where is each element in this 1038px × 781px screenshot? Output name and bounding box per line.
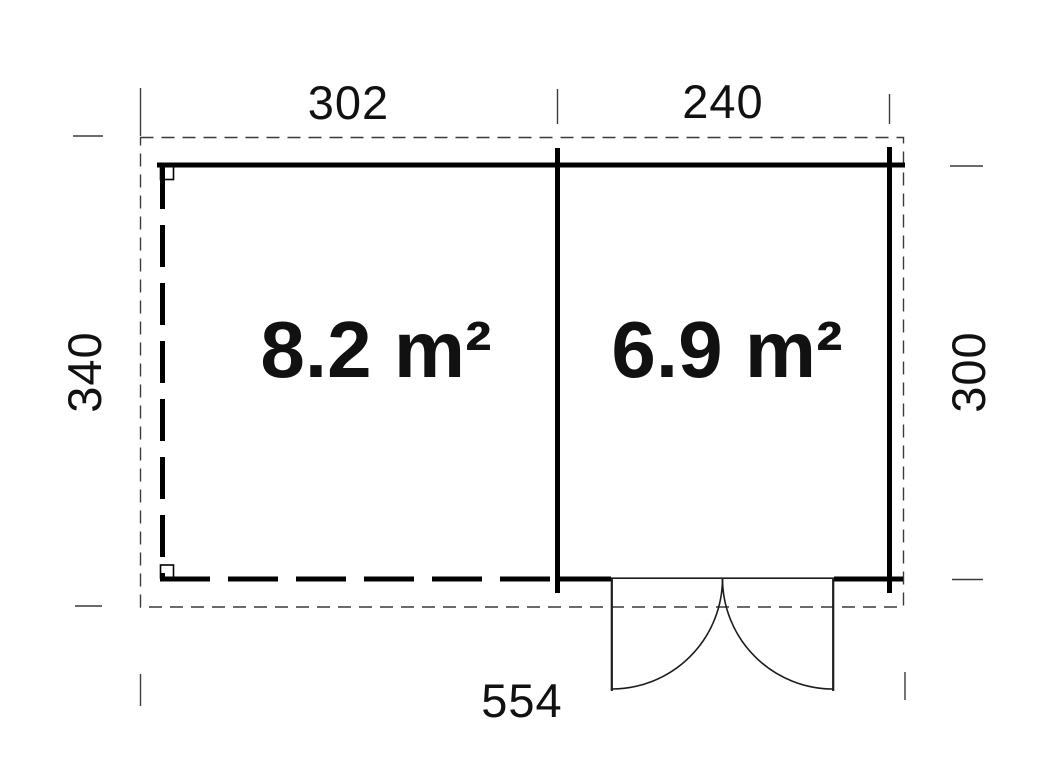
door-swing-arc-right	[723, 578, 834, 689]
dim-label-right: 300	[942, 331, 995, 412]
dim-label-top-left: 302	[308, 76, 389, 129]
dim-label-left: 340	[58, 331, 111, 412]
floor-plan-page: 302 240 340 300 554 8.2 m² 6.9 m²	[0, 0, 1038, 781]
door-swing-arc-left	[612, 578, 723, 689]
room-right-area-label: 6.9 m²	[611, 305, 842, 394]
dimension-labels: 302 240 340 300 554	[58, 75, 995, 727]
dim-label-top-right: 240	[682, 75, 763, 128]
room-area-labels: 8.2 m² 6.9 m²	[260, 305, 842, 394]
floor-plan-drawing: 302 240 340 300 554 8.2 m² 6.9 m²	[0, 0, 1038, 781]
room-left-area-label: 8.2 m²	[260, 305, 491, 394]
dim-label-bottom: 554	[481, 674, 562, 727]
double-door	[611, 578, 834, 691]
dimension-extension-lines	[73, 88, 983, 706]
